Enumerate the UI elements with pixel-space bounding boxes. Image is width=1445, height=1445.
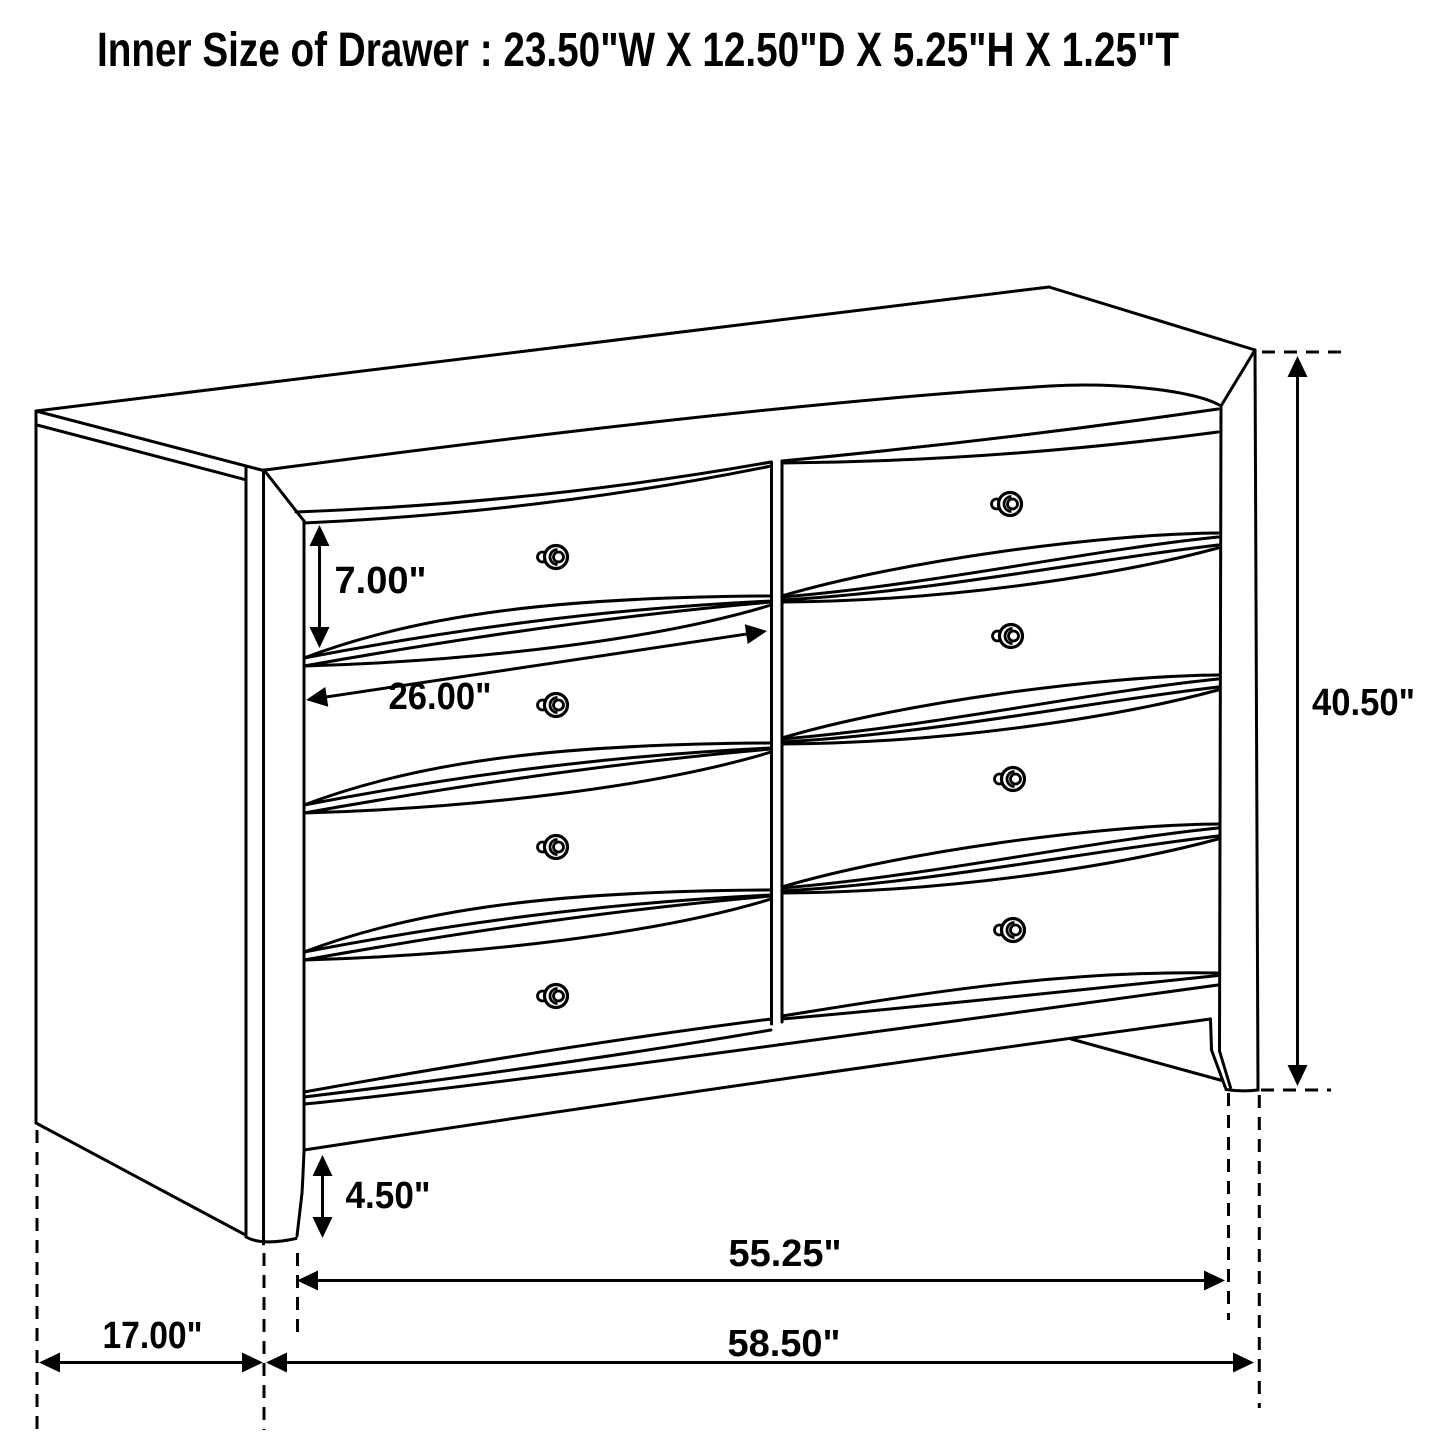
svg-text:7.00": 7.00" <box>335 560 427 602</box>
svg-text:26.00": 26.00" <box>389 676 492 718</box>
svg-text:4.50": 4.50" <box>346 1175 431 1217</box>
svg-text:40.50": 40.50" <box>1312 682 1415 724</box>
svg-text:17.00": 17.00" <box>103 1315 203 1357</box>
svg-text:58.50": 58.50" <box>727 1323 840 1365</box>
svg-text:55.25": 55.25" <box>728 1233 841 1275</box>
svg-text:Inner Size of Drawer : 23.50"W: Inner Size of Drawer : 23.50"W X 12.50"D… <box>97 24 1179 77</box>
